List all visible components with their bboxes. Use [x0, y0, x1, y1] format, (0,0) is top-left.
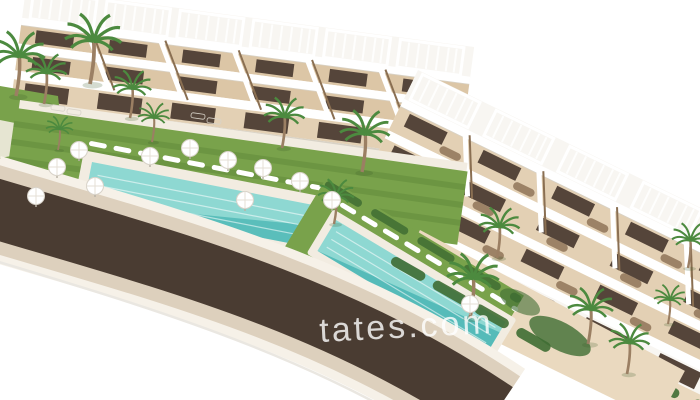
- scene-canvas: tates.com: [0, 0, 700, 400]
- render-image: tates.com: [0, 0, 700, 400]
